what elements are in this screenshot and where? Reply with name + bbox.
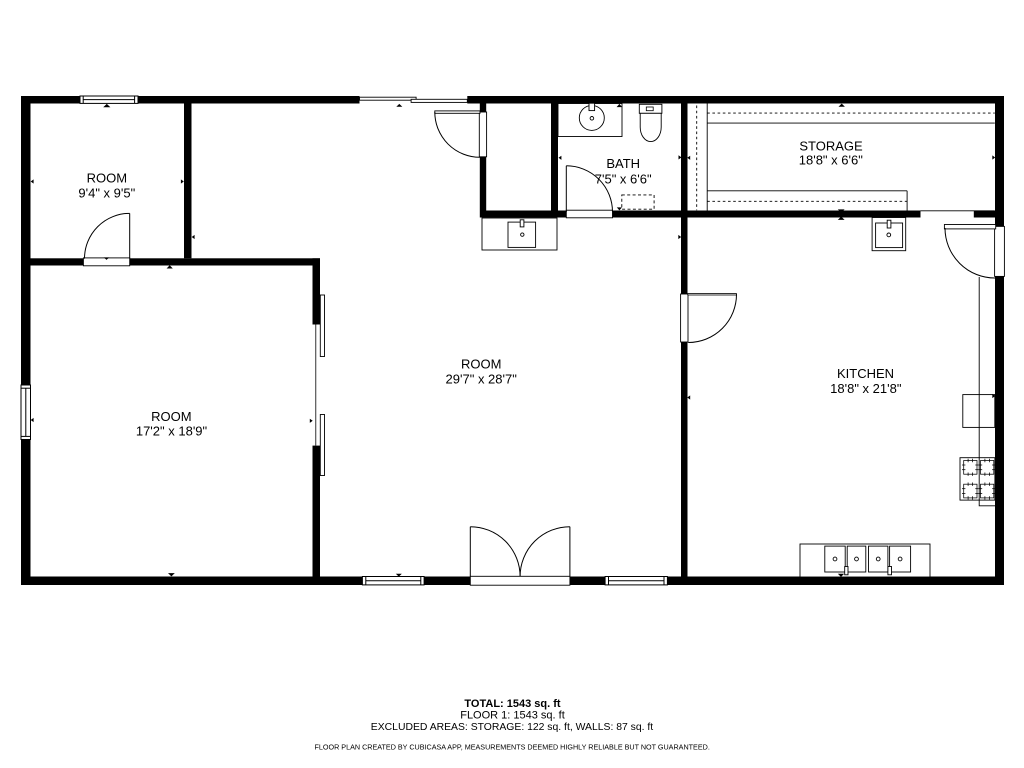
svg-text:EXCLUDED AREAS: STORAGE: 122 s: EXCLUDED AREAS: STORAGE: 122 sq. ft, WAL… [371,722,654,733]
svg-text:17'2" x 18'9": 17'2" x 18'9" [136,424,208,439]
svg-text:TOTAL: 1543 sq. ft: TOTAL: 1543 sq. ft [464,698,561,710]
svg-text:FLOOR 1: 1543 sq. ft: FLOOR 1: 1543 sq. ft [460,710,565,722]
svg-text:ROOM: ROOM [87,170,127,185]
svg-text:ROOM: ROOM [461,357,501,372]
svg-text:18'8" x 6'6": 18'8" x 6'6" [799,152,863,167]
svg-text:7'5" x 6'6": 7'5" x 6'6" [595,171,652,186]
svg-text:KITCHEN: KITCHEN [837,366,894,381]
svg-text:FLOOR PLAN CREATED BY CUBICASA: FLOOR PLAN CREATED BY CUBICASA APP, MEAS… [315,742,710,751]
svg-text:9'4" x 9'5": 9'4" x 9'5" [78,185,135,200]
svg-text:18'8" x 21'8": 18'8" x 21'8" [830,381,902,396]
svg-text:BATH: BATH [606,156,640,171]
svg-text:STORAGE: STORAGE [799,138,863,153]
svg-text:ROOM: ROOM [151,409,191,424]
svg-text:29'7" x 28'7": 29'7" x 28'7" [446,372,518,387]
